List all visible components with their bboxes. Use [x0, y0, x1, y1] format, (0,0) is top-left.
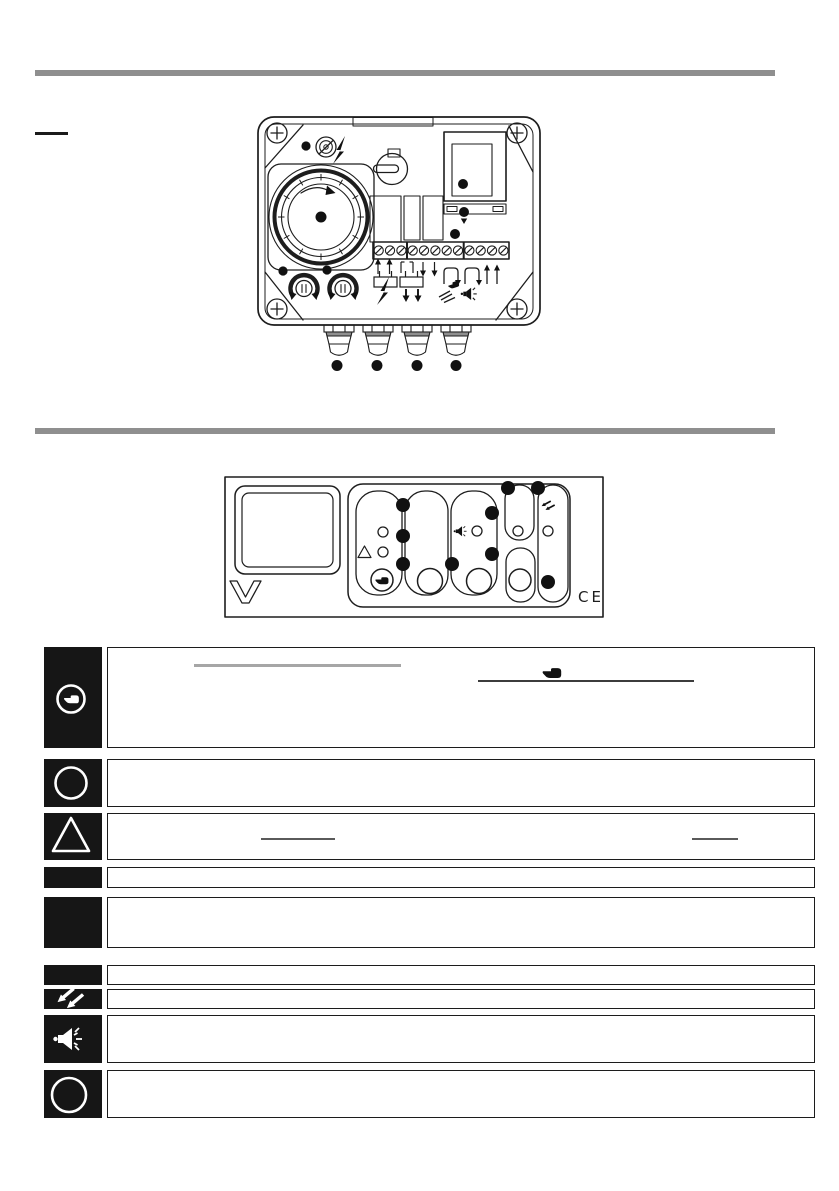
wiring-symbols	[374, 259, 438, 306]
lightning-icon	[333, 136, 345, 164]
relay-contact-icon	[444, 265, 500, 286]
text-underline	[261, 838, 335, 840]
legend-row	[107, 647, 815, 748]
hand-icon	[542, 667, 562, 679]
legend-row	[107, 1070, 815, 1118]
callout-dot	[332, 360, 343, 371]
legend-row	[107, 965, 815, 985]
display-window	[235, 486, 340, 574]
legend-icon-blank	[44, 867, 102, 888]
selector-knob	[374, 149, 408, 185]
led-indicator	[543, 526, 553, 536]
callout-dot	[451, 360, 462, 371]
legend-row	[107, 813, 815, 860]
callout-dot	[412, 360, 423, 371]
hand-icon	[375, 577, 388, 584]
hand-icon	[64, 695, 79, 703]
terminal-strip	[373, 242, 509, 259]
cover-window	[444, 132, 506, 201]
potentiometer-knob	[328, 275, 358, 300]
potentiometer-knob	[289, 275, 319, 300]
brand-v-logo	[230, 581, 261, 603]
legend-row	[107, 867, 815, 888]
legend-icon-blank	[44, 965, 102, 985]
text-underline	[692, 838, 738, 840]
fuel-arrows-icon	[58, 989, 84, 1008]
fuel-arrows-icon	[541, 499, 555, 511]
enclosure-outline	[258, 117, 540, 325]
button	[467, 569, 492, 594]
callout-dot	[316, 212, 327, 223]
legend-icon-triangle	[44, 813, 102, 860]
legend-icon-fuel-arrows	[44, 989, 102, 1009]
figure-device-drawing	[250, 110, 552, 378]
circle-icon	[56, 768, 87, 799]
horn-icon	[461, 288, 477, 300]
callout-dot	[278, 266, 287, 275]
button	[418, 569, 443, 594]
legend-row	[107, 1015, 815, 1063]
led-indicator	[378, 547, 388, 557]
manual-page: CE	[0, 0, 839, 1191]
legend-icon-circle	[44, 759, 102, 807]
callout-dot	[450, 229, 460, 239]
hand-waves-icon	[439, 281, 460, 303]
callout-dot	[458, 179, 468, 189]
button	[509, 569, 531, 591]
horn-icon	[454, 526, 467, 536]
legend-icon-circle	[44, 1070, 102, 1118]
legend-icon-horn	[44, 1015, 102, 1063]
section-divider-top	[35, 70, 775, 76]
callout-dot	[459, 207, 469, 217]
legend-row	[107, 759, 815, 807]
ce-mark: CE	[578, 588, 604, 606]
callout-dot	[301, 141, 310, 150]
legend-icon-blank	[44, 897, 102, 948]
led-indicator	[378, 527, 388, 537]
cable-glands	[324, 325, 471, 371]
triangle-icon	[53, 818, 89, 851]
figure-faceplate-drawing: CE	[220, 472, 612, 622]
lock-icon	[316, 137, 336, 157]
clamp-bar	[444, 204, 506, 224]
section-divider-middle	[35, 428, 775, 434]
controls-group	[348, 481, 570, 607]
text-underline-dark	[478, 680, 694, 682]
legend-row	[107, 989, 815, 1009]
heading-underline	[35, 132, 68, 135]
cam-dial	[268, 164, 374, 270]
led-indicator	[513, 526, 523, 536]
horn-icon	[53, 1028, 82, 1050]
component-blocks	[370, 196, 443, 242]
circle-icon	[52, 1078, 86, 1112]
led-indicator	[472, 526, 482, 536]
text-underline-gray	[194, 664, 401, 667]
faceplate-frame	[225, 477, 603, 617]
callout-dot	[372, 360, 383, 371]
triangle-icon	[358, 546, 371, 558]
callout-dot	[322, 265, 331, 274]
legend-row	[107, 897, 815, 948]
lightning-icon	[377, 277, 389, 305]
legend-icon-hand-circle	[44, 647, 102, 748]
